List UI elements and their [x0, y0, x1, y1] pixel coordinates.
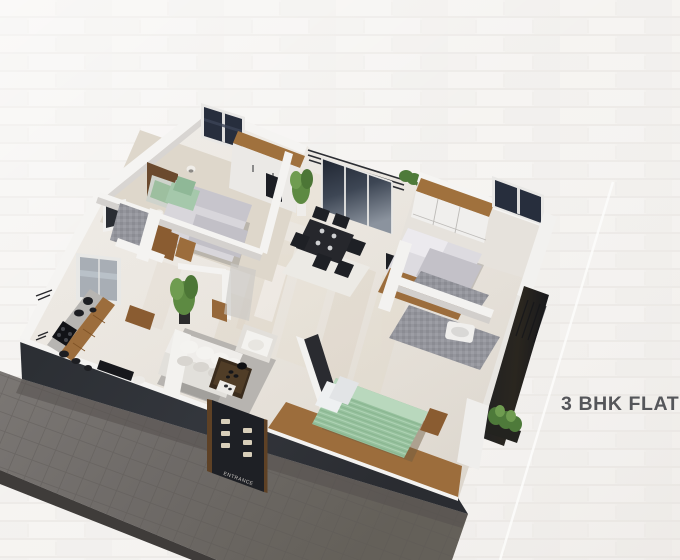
svg-text:3 BHK FLAT: 3 BHK FLAT: [561, 393, 679, 415]
